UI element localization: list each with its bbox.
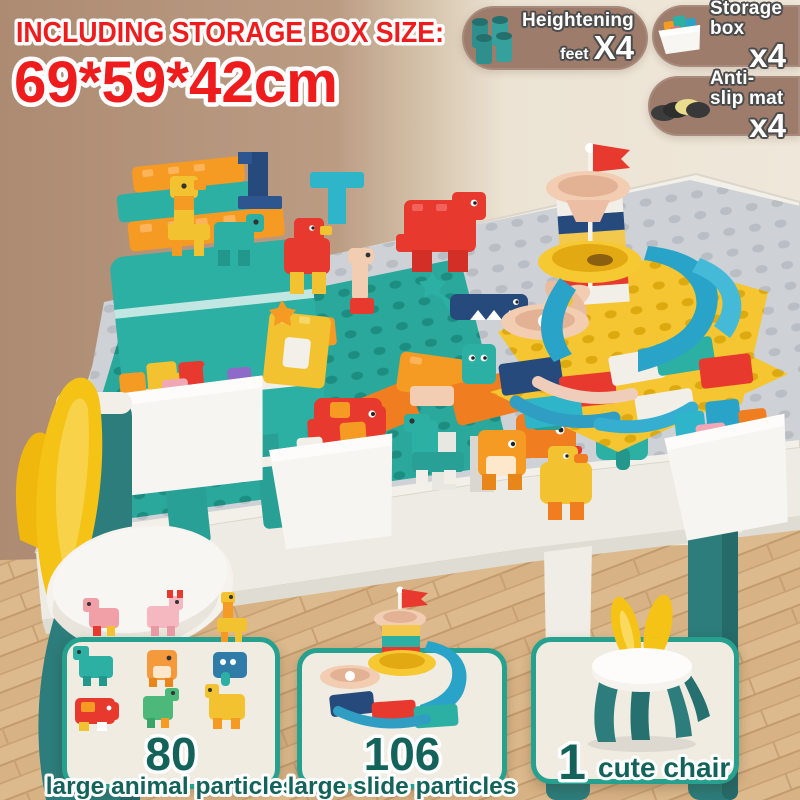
storage-box-icon: [652, 8, 710, 64]
title-line-1: INCLUDING STORAGE BOX SIZE:: [16, 17, 444, 49]
card-cute-chair: 1 cute chair: [531, 637, 739, 784]
badge-storage-box: Storage box x4: [652, 5, 800, 67]
badge-heightening-feet: Heightening feet X4: [462, 6, 648, 70]
card-animal-label: large animal particles: [46, 773, 297, 800]
badge-mat-label: Anti-slip mat: [710, 69, 786, 109]
marble-slide-art: [310, 589, 494, 739]
title-block: INCLUDING STORAGE BOX SIZE: 69*59*42cm: [10, 2, 490, 118]
card-chair-count: 1: [558, 734, 586, 790]
yellow-bridge-block: [262, 311, 331, 389]
badge-mat-count: x4: [749, 109, 786, 144]
bunny-chair-art: [564, 606, 714, 756]
card-slide-particles: 106 large slide particles: [297, 648, 507, 789]
card-animal-particles: 80 large animal particles: [62, 637, 280, 789]
animal-figures-art: [63, 590, 279, 740]
badge-anti-slip-mat: Anti-slip mat x4: [648, 76, 800, 136]
anti-slip-mat-icon: [648, 79, 710, 133]
product-image: INCLUDING STORAGE BOX SIZE: 69*59*42cm H…: [0, 0, 800, 800]
badge-heightening-label: Heightening: [522, 11, 634, 31]
badge-heightening-label-2: feet: [560, 47, 588, 64]
badge-heightening-count: X4: [594, 31, 634, 66]
card-slide-label: large slide particles: [288, 773, 517, 800]
heightening-feet-icon: [462, 8, 520, 68]
badge-storage-label: Storage box: [710, 0, 786, 39]
title-line-2: 69*59*42cm: [14, 50, 338, 115]
card-chair-label: cute chair: [598, 752, 730, 783]
